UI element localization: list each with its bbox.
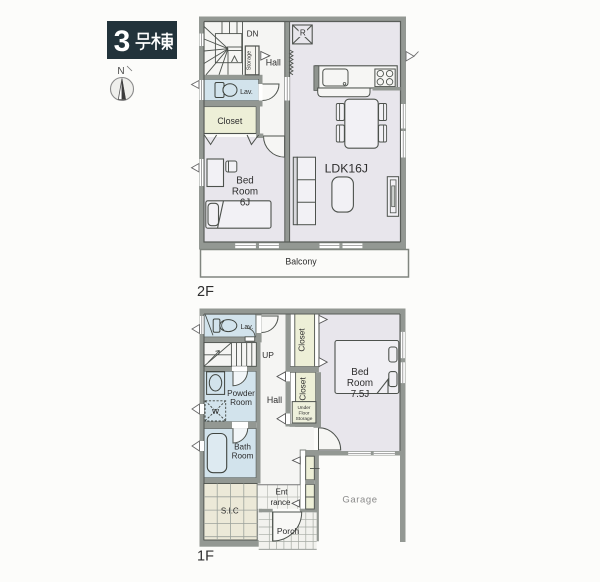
svg-text:Floor: Floor [299, 411, 310, 417]
svg-text:Bath: Bath [234, 443, 251, 452]
svg-text:DN: DN [247, 30, 259, 39]
svg-text:6J: 6J [240, 198, 250, 209]
svg-text:R: R [300, 29, 306, 38]
svg-text:7.5J: 7.5J [351, 389, 370, 400]
svg-text:Lav.: Lav. [240, 89, 253, 96]
svg-text:3: 3 [114, 25, 131, 58]
svg-text:Room: Room [230, 398, 252, 407]
svg-text:Ent: Ent [275, 488, 288, 497]
svg-text:1F: 1F [197, 549, 214, 565]
svg-text:LDK16J: LDK16J [325, 162, 368, 176]
svg-text:Hall: Hall [267, 395, 282, 405]
svg-text:Storage: Storage [247, 51, 253, 71]
svg-text:Closet: Closet [299, 377, 308, 401]
svg-text:Hall: Hall [266, 58, 281, 68]
svg-text:Storage: Storage [296, 416, 313, 422]
svg-text:Room: Room [232, 187, 258, 198]
svg-text:Under: Under [297, 405, 310, 411]
svg-text:Bed: Bed [351, 367, 368, 378]
svg-text:W: W [212, 407, 220, 416]
svg-text:2F: 2F [197, 284, 214, 300]
svg-text:Powder: Powder [227, 389, 255, 398]
svg-text:Garage: Garage [342, 495, 377, 506]
svg-text:Room: Room [232, 452, 254, 461]
svg-text:N: N [117, 66, 124, 77]
svg-text:S.I.C: S.I.C [221, 507, 239, 516]
svg-text:Room: Room [347, 378, 373, 389]
svg-text:Closet: Closet [298, 328, 307, 352]
svg-text:UP: UP [262, 350, 274, 360]
svg-text:Closet: Closet [217, 116, 242, 126]
svg-text:Balcony: Balcony [285, 257, 317, 267]
svg-text:rance: rance [270, 498, 291, 507]
svg-text:Bed: Bed [236, 176, 253, 187]
svg-text:Porch: Porch [277, 526, 299, 536]
